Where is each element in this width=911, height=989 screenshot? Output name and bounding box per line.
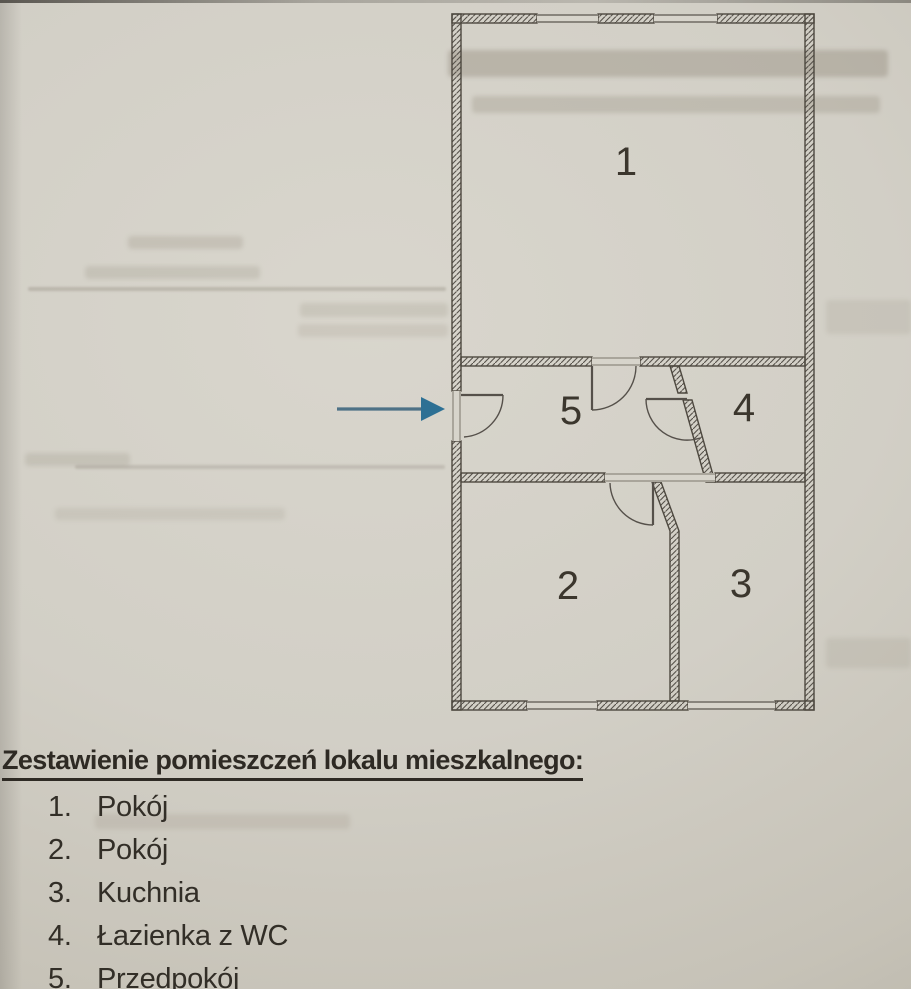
legend-item-3: 3. Kuchnia [0, 872, 288, 915]
legend-heading: Zestawienie pomieszczeń lokalu mieszkaln… [2, 745, 583, 781]
room-label-3: 3 [730, 562, 752, 606]
exterior-wall-top [717, 14, 814, 23]
exterior-wall-bottom [775, 701, 814, 710]
opening-room1 [592, 357, 640, 366]
room-label-4: 4 [733, 386, 755, 430]
window [527, 701, 597, 710]
legend-item-1: 1. Pokój [0, 786, 288, 829]
entrance-opening [452, 391, 461, 441]
slanted-wall-lower [683, 400, 715, 482]
legend-item-4: 4. Łazienka z WC [0, 915, 288, 958]
entrance-door [461, 395, 503, 437]
legend-item-label: Pokój [97, 791, 168, 824]
legend-item-5: 5. Przedpokój [0, 958, 288, 989]
door-room1 [592, 366, 636, 410]
legend-item-label: Przedpokój [97, 963, 239, 989]
exterior-wall-left [452, 14, 461, 391]
room-label-2: 2 [557, 564, 579, 608]
window [688, 701, 775, 710]
exterior-wall-left [452, 441, 461, 710]
room-label-1: 1 [615, 140, 637, 184]
legend-item-number: 3. [48, 877, 97, 910]
legend-item-number: 4. [48, 920, 97, 953]
door-room2 [610, 482, 653, 525]
window [654, 14, 717, 23]
interior-wall-room1 [461, 357, 592, 366]
entrance-arrow-icon [337, 397, 445, 421]
exterior-wall-bottom [452, 701, 527, 710]
exterior-wall-right [805, 14, 814, 710]
scanned-document-page: 1 5 4 2 3 Zestawienie pomieszczeń lokalu… [0, 0, 911, 989]
legend-item-2: 2. Pokój [0, 829, 288, 872]
legend-list: 1. Pokój 2. Pokój 3. Kuchnia 4. Łazienka… [0, 786, 288, 989]
interior-wall-room1 [640, 357, 805, 366]
legend-item-number: 2. [48, 834, 97, 867]
legend-item-label: Pokój [97, 834, 168, 867]
room-label-5: 5 [560, 389, 582, 433]
wall-room2-room3 [652, 482, 679, 701]
exterior-wall-top [598, 14, 654, 23]
legend-item-label: Łazienka z WC [97, 920, 288, 953]
legend-item-number: 1. [48, 791, 97, 824]
exterior-wall-bottom [597, 701, 688, 710]
slanted-wall-upper [670, 366, 687, 393]
opening-rooms2-3 [605, 473, 715, 482]
window [537, 14, 598, 23]
interior-wall-lower [461, 473, 605, 482]
legend-item-label: Kuchnia [97, 877, 200, 910]
room-number-labels: 1 5 4 2 3 [557, 140, 755, 608]
exterior-wall-top [452, 14, 537, 23]
interior-wall-lower [715, 473, 805, 482]
legend-item-number: 5. [48, 963, 97, 989]
